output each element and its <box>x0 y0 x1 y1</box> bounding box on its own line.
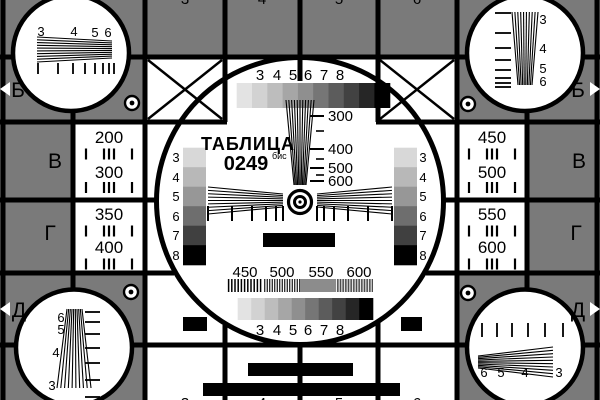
scale-label-600: 600 <box>328 173 353 190</box>
test-card-canvas: ТАБЛИЦА 0249 бис 300 400 500 600 450 500… <box>0 0 600 400</box>
corner-circle-bottom-right <box>467 290 583 400</box>
step-label: 6 <box>172 209 179 224</box>
target-icon-bottom-left <box>124 285 138 299</box>
wedge-label: 5 <box>57 322 64 337</box>
panel-value: 600 <box>478 238 506 257</box>
step-label: 8 <box>172 248 179 263</box>
panel-value: 200 <box>95 128 123 147</box>
row-letter-left: Б <box>11 79 25 102</box>
step-label: 4 <box>172 170 179 185</box>
panel-value: 400 <box>95 238 123 257</box>
wedge-label: 3 <box>539 12 546 27</box>
scale-label-400: 400 <box>328 141 353 158</box>
wedge-label: 3 <box>555 365 562 380</box>
black-reference-bar <box>263 233 335 247</box>
panel-value: 450 <box>478 128 506 147</box>
row-letter-left: В <box>48 150 62 173</box>
column-digit: 5 <box>335 0 343 8</box>
step-label: 4 <box>273 322 281 339</box>
panel-value: 300 <box>95 163 123 182</box>
step-label: 8 <box>336 67 344 84</box>
step-label: 4 <box>419 170 426 185</box>
wedge-label: 4 <box>539 41 546 56</box>
wedge-label: 5 <box>497 365 504 380</box>
column-digit: 4 <box>258 0 266 8</box>
column-digit: 5 <box>335 395 343 400</box>
step-label: 5 <box>289 322 297 339</box>
column-digit: 6 <box>413 0 421 8</box>
step-label: 5 <box>289 67 297 84</box>
black-square-left <box>183 317 207 331</box>
row-letter-right: Г <box>570 222 581 245</box>
wedge-label: 4 <box>52 345 59 360</box>
step-label: 7 <box>172 228 179 243</box>
target-icon-top-left <box>125 96 139 110</box>
target-icon-bottom-right <box>461 286 475 300</box>
wedge-label: 5 <box>91 25 98 40</box>
freq-label-600: 600 <box>346 264 371 281</box>
wedge-label: 6 <box>539 74 546 89</box>
step-label: 5 <box>419 189 426 204</box>
freq-label-450: 450 <box>232 264 257 281</box>
step-label: 6 <box>304 322 312 339</box>
column-digit: 4 <box>258 395 266 400</box>
table-number-suffix: бис <box>272 151 287 161</box>
black-square-right <box>401 317 422 331</box>
table-number: 0249 <box>224 153 269 175</box>
panel-value: 550 <box>478 205 506 224</box>
column-digit: 3 <box>181 0 189 8</box>
row-letter-left: Г <box>44 222 55 245</box>
column-digit: 6 <box>413 395 421 400</box>
corner-circle-bottom-left <box>16 290 132 400</box>
scale-label-300: 300 <box>328 108 353 125</box>
row-letter-right: Б <box>571 79 585 102</box>
wedge-label: 6 <box>104 25 111 40</box>
tv-test-card: ТАБЛИЦА 0249 бис 300 400 500 600 450 500… <box>0 0 600 400</box>
step-label: 6 <box>419 209 426 224</box>
left-grayscale-column <box>183 148 206 266</box>
row-letter-left: Д <box>12 299 26 322</box>
row-letter-right: Д <box>571 299 585 322</box>
step-label: 4 <box>273 67 281 84</box>
step-label: 8 <box>419 248 426 263</box>
freq-label-500: 500 <box>269 264 294 281</box>
panel-value: 500 <box>478 163 506 182</box>
wedge-label: 6 <box>480 365 487 380</box>
step-label: 3 <box>172 150 179 165</box>
target-icon-top-right <box>461 97 475 111</box>
bottom-grayscale-bar <box>238 298 374 320</box>
step-label: 7 <box>419 228 426 243</box>
wedge-label: 3 <box>37 24 44 39</box>
step-label: 6 <box>304 67 312 84</box>
step-label: 3 <box>419 150 426 165</box>
column-digit: 3 <box>181 395 189 400</box>
wedge-label: 4 <box>521 365 528 380</box>
corner-circle-top-right <box>467 0 583 111</box>
wedge-label: 3 <box>48 378 55 393</box>
step-label: 5 <box>172 189 179 204</box>
step-label: 7 <box>320 322 328 339</box>
step-label: 3 <box>256 67 264 84</box>
right-grayscale-column <box>394 148 417 266</box>
wedge-label: 4 <box>70 24 77 39</box>
step-label: 7 <box>320 67 328 84</box>
freq-label-550: 550 <box>308 264 333 281</box>
row-letter-right: В <box>572 150 586 173</box>
panel-value: 350 <box>95 205 123 224</box>
